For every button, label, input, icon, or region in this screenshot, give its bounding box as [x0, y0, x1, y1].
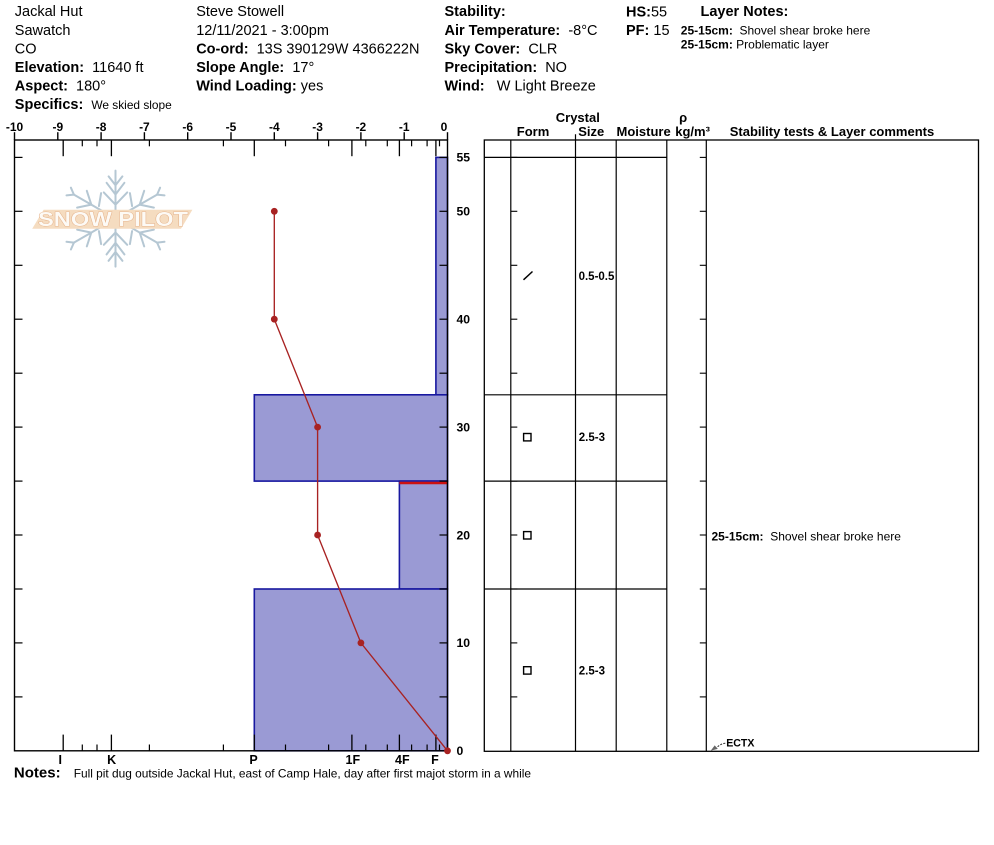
svg-text:0.5-0.5: 0.5-0.5: [579, 271, 615, 283]
svg-text:-5: -5: [226, 120, 237, 134]
svg-text:4F: 4F: [395, 753, 410, 767]
svg-text:-9: -9: [52, 120, 63, 134]
svg-text:Precipitation: NO: Precipitation: NO: [445, 60, 567, 76]
svg-text:Sky Cover: CLR: Sky Cover: CLR: [445, 41, 558, 57]
svg-text:Full pit dug outside Jackal Hu: Full pit dug outside Jackal Hut, east of…: [74, 766, 532, 780]
svg-text:-7: -7: [139, 120, 150, 134]
svg-text:Wind Loading: yes: Wind Loading: yes: [196, 79, 323, 95]
svg-text:Form: Form: [517, 124, 550, 139]
svg-text:Size: Size: [578, 124, 604, 139]
svg-text:25-15cm: Problematic layer: 25-15cm: Problematic layer: [681, 38, 829, 52]
svg-text:F: F: [431, 753, 439, 767]
svg-text:40: 40: [457, 313, 471, 327]
svg-text:1F: 1F: [346, 753, 361, 767]
svg-text:0: 0: [457, 744, 464, 758]
svg-text:Notes:: Notes:: [14, 764, 61, 781]
svg-text:-1: -1: [399, 120, 410, 134]
svg-text:-2: -2: [356, 120, 367, 134]
svg-text:Specifics: We skied slope: Specifics: We skied slope: [15, 97, 172, 113]
svg-text:Layer Notes:: Layer Notes:: [701, 4, 789, 20]
svg-text:P: P: [249, 753, 257, 767]
svg-text:Moisture: Moisture: [617, 124, 671, 139]
svg-text:PF: 15: PF: 15: [626, 23, 670, 39]
svg-text:Wind: W Light Breeze: Wind: W Light Breeze: [445, 79, 596, 95]
svg-text:Jackal Hut: Jackal Hut: [15, 4, 83, 20]
svg-text:Aspect: 180°: Aspect: 180°: [15, 79, 106, 95]
svg-text:-3: -3: [312, 120, 323, 134]
svg-text:Stability:: Stability:: [445, 4, 506, 20]
svg-text:-6: -6: [182, 120, 193, 134]
svg-text:HS:55: HS:55: [626, 4, 667, 20]
svg-text:Crystal: Crystal: [556, 110, 600, 125]
svg-text:Stability tests & Layer commen: Stability tests & Layer comments: [730, 124, 934, 139]
svg-text:0: 0: [441, 120, 448, 134]
svg-text:K: K: [107, 753, 116, 767]
svg-text:Steve Stowell: Steve Stowell: [196, 4, 284, 20]
svg-text:-8: -8: [96, 120, 107, 134]
svg-text:12/11/2021 - 3:00pm: 12/11/2021 - 3:00pm: [196, 23, 329, 39]
svg-text:Co-ord: 13S 390129W 4366222N: Co-ord: 13S 390129W 4366222N: [196, 41, 419, 57]
svg-text:20: 20: [457, 528, 471, 542]
svg-text:Slope Angle: 17°: Slope Angle: 17°: [196, 60, 314, 76]
svg-text:CO: CO: [15, 41, 37, 57]
svg-text:-10: -10: [6, 120, 24, 134]
svg-text:2.5-3: 2.5-3: [579, 665, 605, 677]
svg-text:SNOW PILOT: SNOW PILOT: [38, 209, 188, 231]
svg-text:2.5-3: 2.5-3: [579, 432, 605, 444]
svg-text:25-15cm: Shovel shear broke h: 25-15cm: Shovel shear broke here: [712, 529, 902, 543]
svg-text:ρ: ρ: [679, 110, 687, 125]
svg-text:ECTX: ECTX: [726, 738, 754, 750]
svg-text:50: 50: [457, 205, 471, 219]
svg-text:Air Temperature: -8°C: Air Temperature: -8°C: [445, 23, 598, 39]
svg-text:Elevation: 11640 ft: Elevation: 11640 ft: [15, 60, 144, 76]
svg-text:kg/m³: kg/m³: [675, 124, 710, 139]
svg-text:30: 30: [457, 420, 471, 434]
svg-text:25-15cm: Shovel shear broke h: 25-15cm: Shovel shear broke here: [681, 24, 871, 38]
svg-text:55: 55: [457, 151, 471, 165]
svg-text:10: 10: [457, 636, 471, 650]
svg-text:Sawatch: Sawatch: [15, 23, 71, 39]
svg-text:-4: -4: [269, 120, 280, 134]
